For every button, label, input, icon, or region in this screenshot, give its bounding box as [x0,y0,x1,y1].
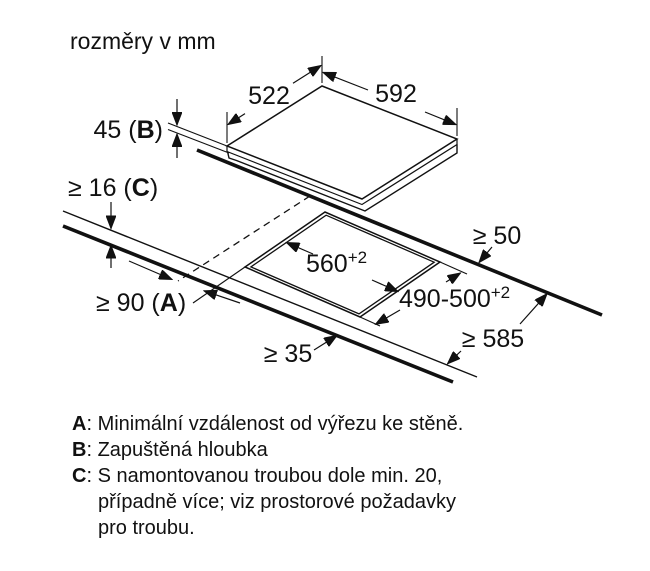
dim-490-500-label: 490-500+2 [399,283,510,313]
dim-35-label: ≥ 35 [264,340,312,368]
dim-522-label: 522 [248,82,290,110]
legend-item-B: B: Zapuštěná hloubka [72,437,612,463]
dim-16-label: ≥ 16 (C) [68,174,158,202]
page-title: rozměry v mm [70,28,216,54]
dim-90-label: ≥ 90 (A) [96,289,186,317]
legend: A: Minimální vzdálenost od výřezu ke stě… [72,411,612,541]
dim-50: ≥ 50 [473,222,521,263]
dim-592-label: 592 [375,80,417,108]
installation-diagram-page: rozměry v mm [0,0,650,571]
dim-45-B: 45 (B) [94,99,229,158]
legend-item-C: C: S namontovanou troubou dole min. 20, [72,463,612,489]
legend-item-C-cont2: pro troubu. [98,515,612,541]
dim-585-label: ≥ 585 [462,325,524,353]
dim-45-label: 45 (B) [94,116,163,144]
installation-diagram: rozměry v mm [0,0,650,400]
dim-50-label: ≥ 50 [473,222,521,250]
legend-item-A: A: Minimální vzdálenost od výřezu ke stě… [72,411,612,437]
legend-item-C-cont1: případně více; viz prostorové požadavky [98,489,612,515]
dim-16-C: ≥ 16 (C) [68,174,158,268]
dim-35: ≥ 35 [264,336,337,369]
